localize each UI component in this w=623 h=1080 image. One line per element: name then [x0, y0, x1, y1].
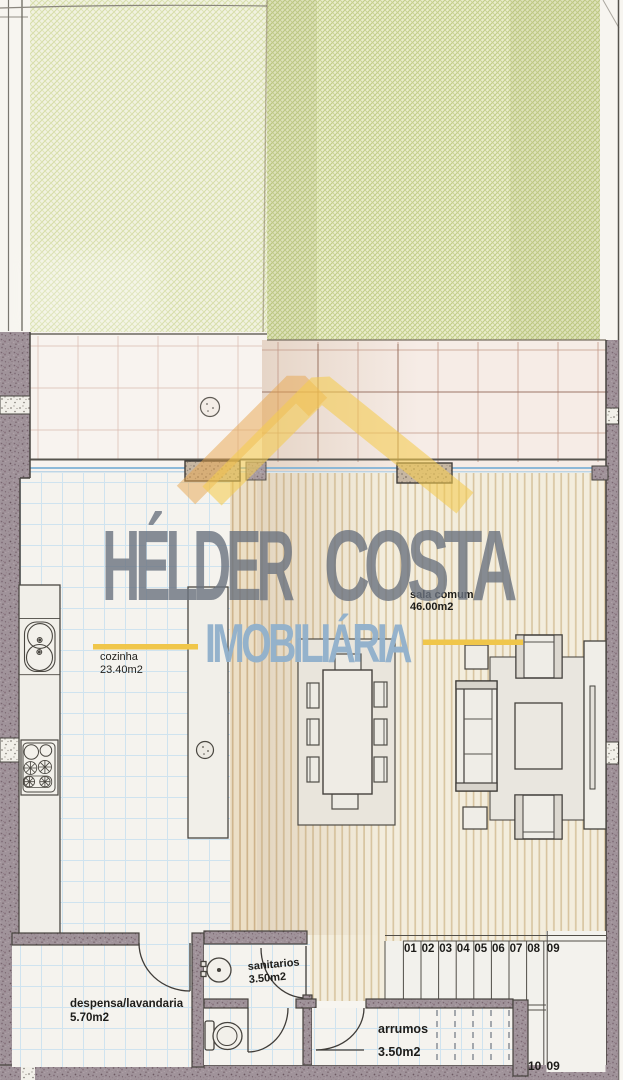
- svg-text:06: 06: [492, 943, 505, 955]
- svg-text:07: 07: [510, 943, 523, 955]
- svg-text:3.50m2: 3.50m2: [378, 1045, 420, 1059]
- svg-text:5.70m2: 5.70m2: [70, 1012, 109, 1024]
- svg-text:09: 09: [547, 1059, 561, 1073]
- svg-text:COSTA: COSTA: [324, 509, 516, 621]
- svg-text:09: 09: [547, 943, 560, 955]
- svg-text:01: 01: [404, 943, 417, 955]
- svg-text:despensa/lavandaria: despensa/lavandaria: [70, 998, 184, 1010]
- svg-text:23.40m2: 23.40m2: [100, 664, 143, 676]
- svg-text:08: 08: [527, 943, 540, 955]
- svg-text:cozinha: cozinha: [100, 651, 139, 663]
- svg-text:04: 04: [457, 943, 470, 955]
- svg-text:03: 03: [439, 943, 452, 955]
- svg-text:HÉLDER: HÉLDER: [102, 510, 294, 621]
- svg-text:05: 05: [474, 943, 487, 955]
- svg-text:IMOBILIÁRIA: IMOBILIÁRIA: [205, 612, 412, 674]
- svg-text:10: 10: [528, 1059, 542, 1073]
- svg-text:02: 02: [422, 943, 435, 955]
- svg-text:arrumos: arrumos: [378, 1022, 428, 1036]
